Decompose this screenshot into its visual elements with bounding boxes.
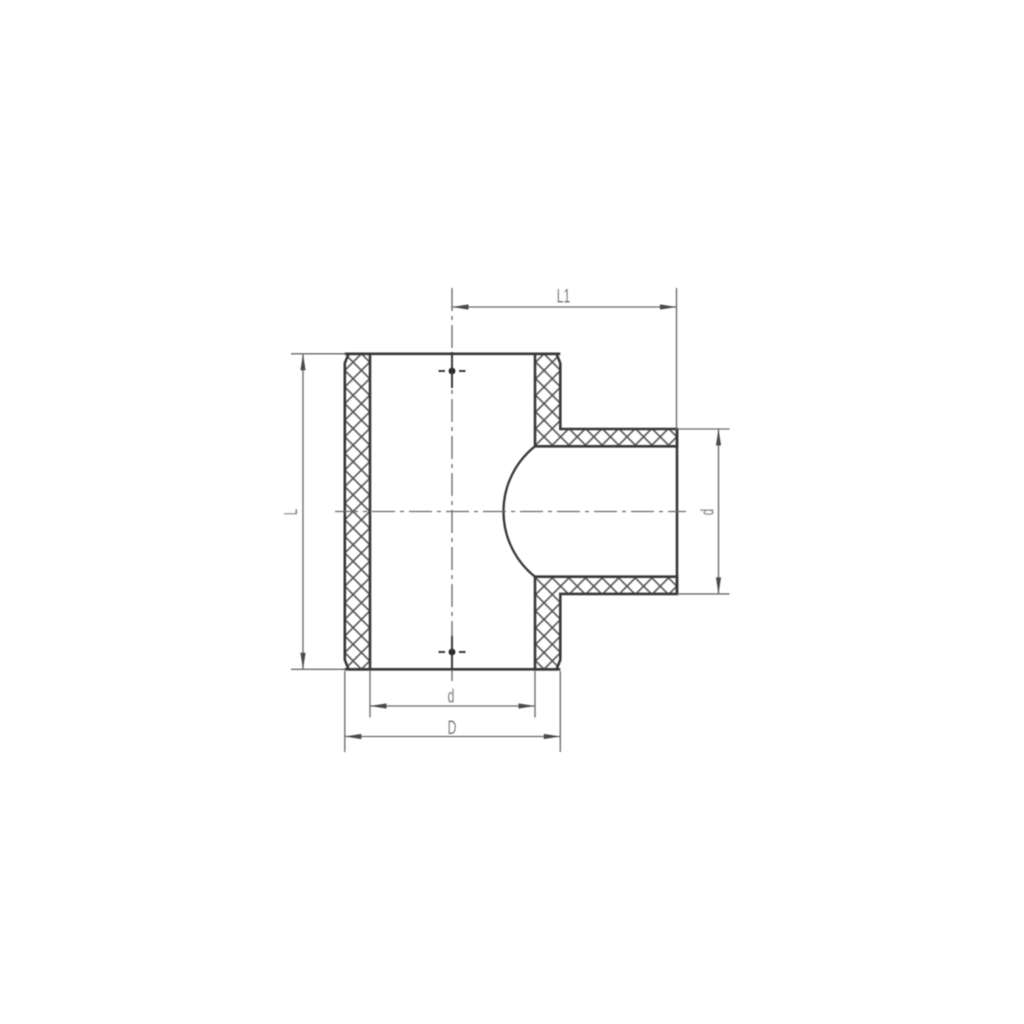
svg-text:d: d	[448, 686, 455, 708]
svg-text:d: d	[698, 509, 718, 515]
svg-text:L: L	[281, 508, 301, 515]
svg-text:L1: L1	[557, 286, 570, 308]
svg-text:D: D	[448, 717, 457, 739]
